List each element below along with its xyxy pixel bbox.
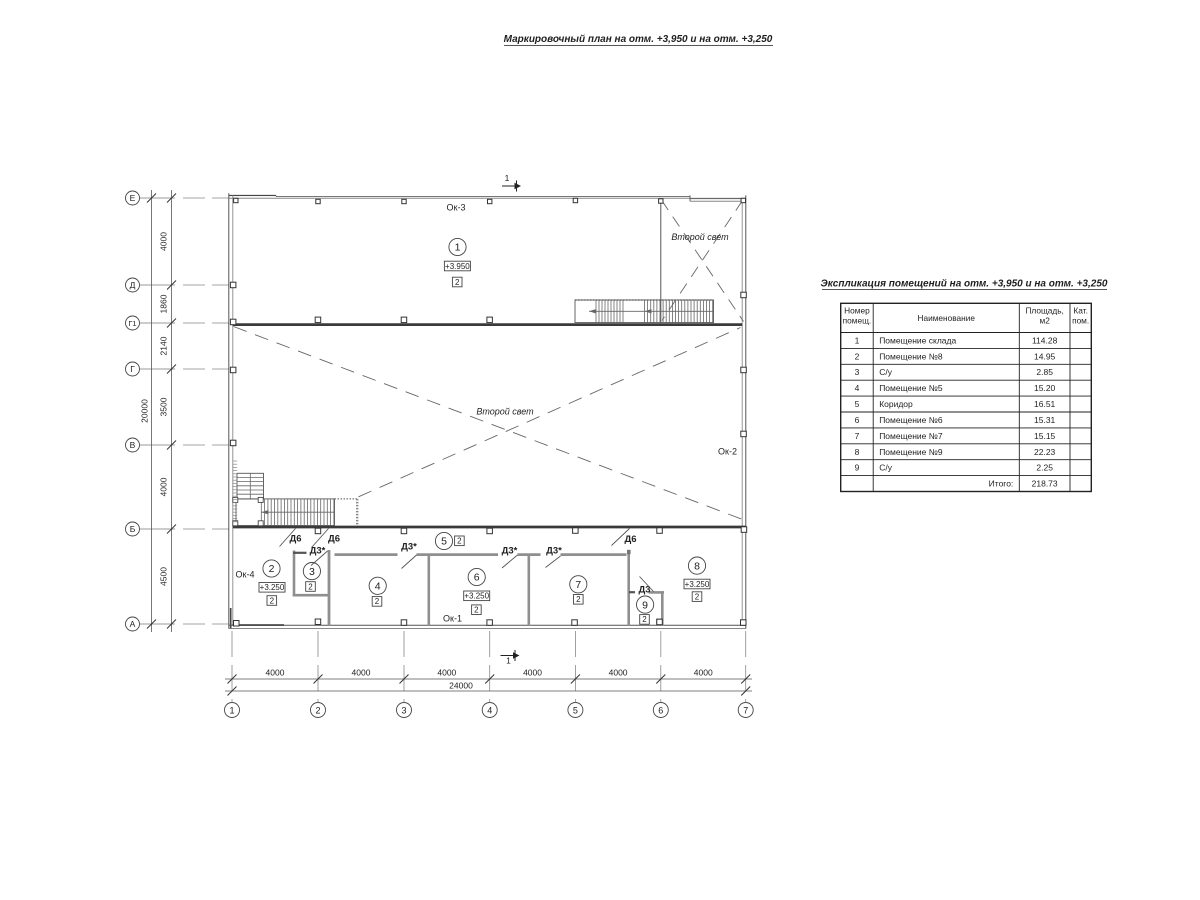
svg-text:Номер: Номер bbox=[844, 306, 870, 316]
svg-text:2: 2 bbox=[474, 606, 479, 615]
svg-text:Помещение склада: Помещение склада bbox=[879, 335, 956, 345]
svg-text:22.23: 22.23 bbox=[1034, 447, 1056, 457]
svg-text:218.73: 218.73 bbox=[1032, 479, 1058, 489]
svg-text:6: 6 bbox=[855, 415, 860, 425]
svg-text:Помещение №6: Помещение №6 bbox=[879, 415, 943, 425]
svg-text:+3.250: +3.250 bbox=[260, 583, 285, 592]
svg-text:7: 7 bbox=[575, 579, 581, 591]
svg-text:2: 2 bbox=[270, 596, 275, 605]
svg-text:4000: 4000 bbox=[609, 668, 628, 678]
svg-text:4500: 4500 bbox=[159, 567, 169, 586]
svg-text:15.15: 15.15 bbox=[1034, 431, 1056, 441]
svg-text:20000: 20000 bbox=[140, 399, 150, 423]
svg-text:2.85: 2.85 bbox=[1036, 367, 1053, 377]
svg-text:4000: 4000 bbox=[523, 668, 542, 678]
svg-text:1: 1 bbox=[855, 335, 860, 345]
svg-text:2: 2 bbox=[455, 278, 460, 287]
svg-text:помещ.: помещ. bbox=[843, 316, 872, 326]
svg-text:Д6: Д6 bbox=[624, 534, 636, 545]
svg-text:2: 2 bbox=[457, 537, 462, 546]
svg-text:Помещение №9: Помещение №9 bbox=[879, 447, 943, 457]
svg-text:16.51: 16.51 bbox=[1034, 399, 1056, 409]
svg-text:Д3*: Д3* bbox=[546, 546, 562, 557]
svg-text:Д6: Д6 bbox=[328, 534, 340, 545]
svg-text:1: 1 bbox=[505, 173, 510, 183]
svg-text:м2: м2 bbox=[1039, 316, 1050, 326]
svg-text:Е: Е bbox=[130, 193, 136, 203]
svg-text:2: 2 bbox=[375, 597, 380, 606]
svg-text:24000: 24000 bbox=[449, 681, 473, 691]
svg-text:1860: 1860 bbox=[159, 294, 169, 313]
svg-text:Помещение №5: Помещение №5 bbox=[879, 383, 943, 393]
svg-text:4000: 4000 bbox=[694, 668, 713, 678]
svg-text:5: 5 bbox=[441, 536, 447, 548]
svg-text:Г1: Г1 bbox=[128, 319, 136, 328]
svg-text:Маркировочный план на отм. +3,: Маркировочный план на отм. +3,950 и на о… bbox=[504, 34, 773, 45]
svg-text:Ок-2: Ок-2 bbox=[718, 447, 737, 457]
svg-text:2: 2 bbox=[269, 563, 275, 575]
svg-text:1: 1 bbox=[455, 242, 461, 254]
svg-text:3: 3 bbox=[855, 367, 860, 377]
svg-text:5: 5 bbox=[573, 705, 578, 715]
svg-text:С/у: С/у bbox=[879, 463, 893, 473]
svg-text:6: 6 bbox=[658, 705, 663, 715]
svg-text:2: 2 bbox=[308, 582, 313, 591]
svg-text:14.95: 14.95 bbox=[1034, 351, 1056, 361]
svg-text:3500: 3500 bbox=[159, 397, 169, 416]
svg-text:8: 8 bbox=[855, 447, 860, 457]
svg-text:2.25: 2.25 bbox=[1036, 463, 1053, 473]
svg-text:4000: 4000 bbox=[352, 668, 371, 678]
svg-text:Г: Г bbox=[130, 364, 135, 374]
svg-text:Помещение №8: Помещение №8 bbox=[879, 351, 943, 361]
svg-text:2: 2 bbox=[576, 595, 581, 604]
svg-text:7: 7 bbox=[743, 705, 748, 715]
svg-text:4000: 4000 bbox=[159, 477, 169, 496]
svg-text:Наименование: Наименование bbox=[917, 313, 975, 323]
svg-text:+3.250: +3.250 bbox=[685, 580, 710, 589]
svg-text:9: 9 bbox=[642, 599, 648, 611]
svg-text:9: 9 bbox=[855, 463, 860, 473]
svg-text:4000: 4000 bbox=[159, 232, 169, 251]
svg-text:4: 4 bbox=[375, 581, 381, 593]
svg-text:2: 2 bbox=[695, 592, 700, 601]
svg-text:Д6: Д6 bbox=[289, 534, 301, 545]
svg-text:5: 5 bbox=[855, 399, 860, 409]
svg-text:2: 2 bbox=[315, 705, 320, 715]
svg-text:пом.: пом. bbox=[1072, 316, 1089, 326]
svg-text:Ок-1: Ок-1 bbox=[443, 614, 462, 624]
svg-text:4000: 4000 bbox=[437, 668, 456, 678]
svg-text:+3.950: +3.950 bbox=[445, 262, 470, 271]
svg-text:Д3*: Д3* bbox=[502, 546, 518, 557]
svg-text:Площадь,: Площадь, bbox=[1025, 306, 1063, 316]
svg-text:Д: Д bbox=[130, 280, 136, 290]
svg-text:7: 7 bbox=[855, 431, 860, 441]
svg-text:С/у: С/у bbox=[879, 367, 893, 377]
svg-text:114.28: 114.28 bbox=[1032, 335, 1058, 345]
svg-text:Коридор: Коридор bbox=[879, 399, 913, 409]
svg-text:2: 2 bbox=[642, 615, 647, 624]
svg-text:Экспликация помещений на отм.: Экспликация помещений на отм. +3,950 и н… bbox=[821, 279, 1108, 290]
svg-text:Б: Б bbox=[130, 524, 136, 534]
svg-text:Кат.: Кат. bbox=[1073, 306, 1087, 316]
svg-text:1: 1 bbox=[506, 656, 511, 666]
svg-text:4000: 4000 bbox=[266, 668, 285, 678]
svg-text:Итого:: Итого: bbox=[989, 479, 1014, 489]
svg-text:15.31: 15.31 bbox=[1034, 415, 1056, 425]
svg-text:4: 4 bbox=[487, 705, 492, 715]
svg-text:4: 4 bbox=[855, 383, 860, 393]
svg-text:+3.250: +3.250 bbox=[464, 592, 489, 601]
svg-text:15.20: 15.20 bbox=[1034, 383, 1056, 393]
svg-text:2: 2 bbox=[855, 351, 860, 361]
svg-text:Д3*: Д3* bbox=[401, 542, 417, 553]
svg-text:Второй свет: Второй свет bbox=[476, 407, 534, 417]
svg-text:2140: 2140 bbox=[159, 336, 169, 355]
svg-text:Второй свет: Второй свет bbox=[671, 232, 729, 242]
svg-text:В: В bbox=[130, 440, 136, 450]
svg-text:3: 3 bbox=[309, 566, 315, 578]
svg-text:А: А bbox=[130, 619, 136, 629]
svg-text:Помещение №7: Помещение №7 bbox=[879, 431, 943, 441]
svg-text:6: 6 bbox=[474, 572, 480, 584]
svg-text:3: 3 bbox=[401, 705, 406, 715]
svg-text:Ок-3: Ок-3 bbox=[447, 203, 466, 213]
svg-text:8: 8 bbox=[694, 560, 700, 572]
svg-text:Ок-4: Ок-4 bbox=[236, 570, 255, 580]
svg-text:1: 1 bbox=[229, 705, 234, 715]
